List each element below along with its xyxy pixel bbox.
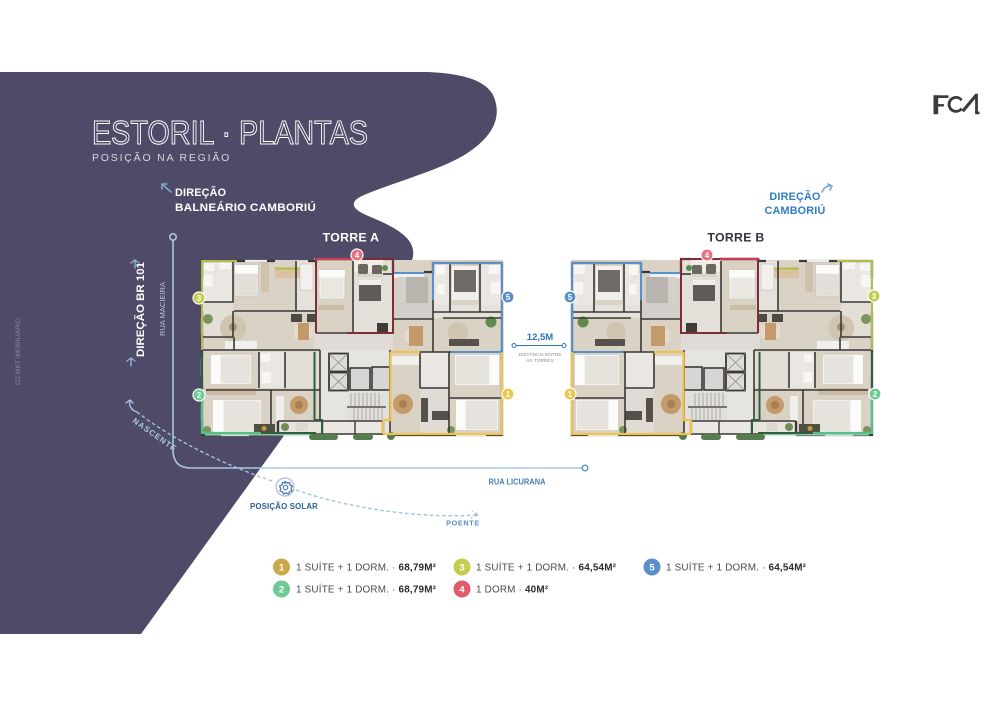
svg-text:2: 2: [197, 391, 202, 400]
svg-text:AS TORRES: AS TORRES: [526, 358, 554, 364]
svg-text:1 SUÍTE + 1 DORM. · 64,54M²: 1 SUÍTE + 1 DORM. · 64,54M²: [476, 563, 617, 574]
svg-text:POSIÇÃO SOLAR: POSIÇÃO SOLAR: [250, 502, 318, 511]
svg-text:1 SUÍTE + 1 DORM. · 68,79M²: 1 SUÍTE + 1 DORM. · 68,79M²: [296, 563, 437, 574]
svg-text:1: 1: [506, 390, 511, 399]
svg-text:DIREÇÃO: DIREÇÃO: [769, 190, 820, 203]
svg-text:4: 4: [705, 251, 710, 260]
svg-text:DIREÇÃO: DIREÇÃO: [175, 186, 226, 199]
svg-text:DIREÇÃO BR 101: DIREÇÃO BR 101: [134, 262, 147, 357]
svg-text:POENTE: POENTE: [446, 519, 480, 528]
svg-text:1 SUÍTE + 1 DORM. · 68,79M²: 1 SUÍTE + 1 DORM. · 68,79M²: [296, 585, 437, 596]
svg-text:3: 3: [459, 563, 464, 574]
svg-text:TORRE A: TORRE A: [323, 231, 380, 245]
svg-text:4: 4: [355, 251, 360, 260]
svg-text:5: 5: [568, 293, 573, 302]
svg-text:12,5M: 12,5M: [527, 332, 553, 343]
svg-text:TORRE B: TORRE B: [707, 231, 764, 245]
svg-text:1 SUÍTE + 1 DORM. · 64,54M²: 1 SUÍTE + 1 DORM. · 64,54M²: [666, 563, 807, 574]
svg-text:1: 1: [568, 390, 573, 399]
svg-text:5: 5: [506, 293, 511, 302]
svg-text:CAMBORIÚ: CAMBORIÚ: [765, 204, 826, 217]
svg-text:POSIÇÃO NA REGIÃO: POSIÇÃO NA REGIÃO: [92, 151, 231, 164]
svg-text:RUA LICURANA: RUA LICURANA: [489, 478, 546, 487]
svg-text:ESTORIL · PLANTAS: ESTORIL · PLANTAS: [92, 114, 368, 151]
svg-text:4: 4: [459, 585, 465, 596]
svg-text:BALNEÁRIO CAMBORIÚ: BALNEÁRIO CAMBORIÚ: [175, 201, 316, 214]
svg-text:GZ MKT IMOBILIARIO: GZ MKT IMOBILIARIO: [16, 318, 22, 385]
svg-text:1: 1: [279, 563, 285, 574]
svg-text:5: 5: [649, 563, 655, 574]
svg-text:2: 2: [279, 585, 284, 596]
svg-text:1 DORM · 40M²: 1 DORM · 40M²: [476, 585, 549, 596]
svg-text:DISTÂNCIA ENTRE: DISTÂNCIA ENTRE: [519, 351, 562, 358]
svg-text:2: 2: [873, 390, 878, 399]
svg-text:3: 3: [872, 292, 877, 301]
svg-text:RUA MACIEIRA: RUA MACIEIRA: [158, 282, 167, 336]
svg-text:3: 3: [197, 294, 202, 303]
